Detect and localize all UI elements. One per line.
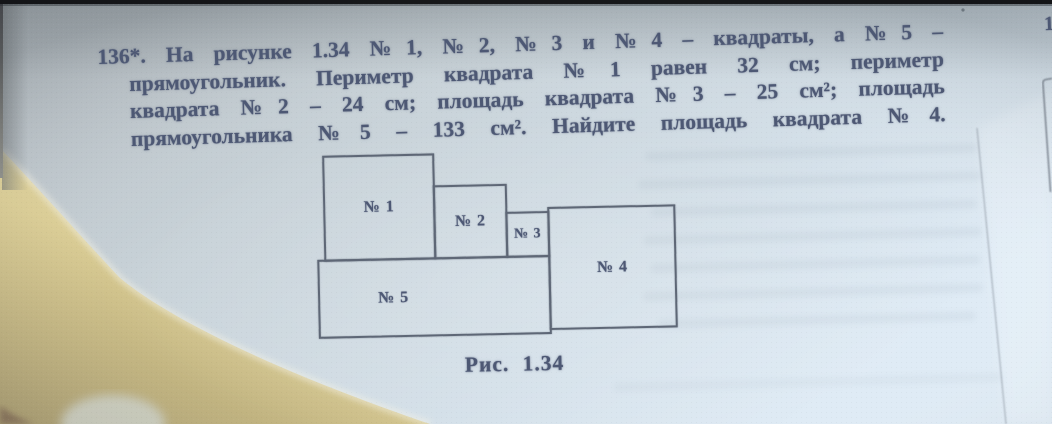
photographed-textbook-page: 136*. На рисунке 1.34 №1, №2, №3 и №4 – … xyxy=(0,0,1052,424)
square-2-label: № 2 xyxy=(455,212,486,231)
rectangle-5-label: № 5 xyxy=(378,288,409,307)
square-1-label: № 1 xyxy=(363,198,394,217)
figure-1-34: № 1 № 2 № 3 № 4 № 5 Рис. 1.34 xyxy=(310,142,695,395)
square-1: № 1 xyxy=(322,153,436,261)
square-2: № 2 xyxy=(433,184,509,260)
figure-caption: Рис. 1.34 xyxy=(324,348,704,381)
square-3-label: № 3 xyxy=(514,226,542,243)
square-4-label: № 4 xyxy=(597,258,628,277)
cropped-page-number: 1 xyxy=(1044,13,1052,36)
square-4: № 4 xyxy=(547,204,678,330)
square-3: № 3 xyxy=(505,211,550,258)
rectangle-5: № 5 xyxy=(317,255,552,339)
